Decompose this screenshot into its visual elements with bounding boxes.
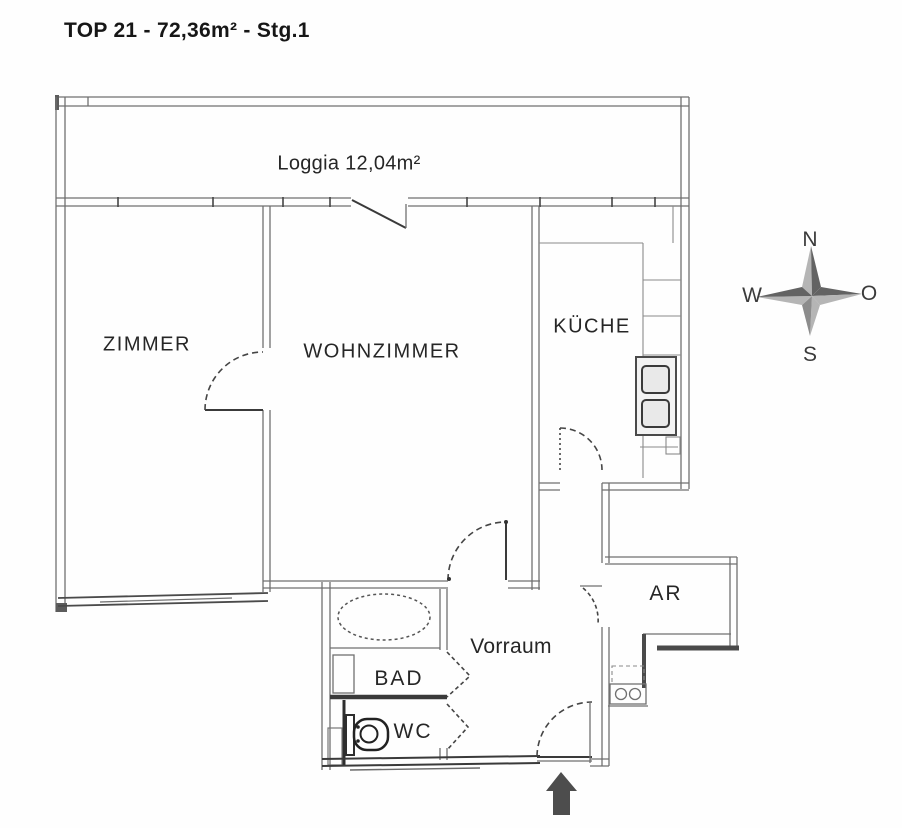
room-label-wc: WC bbox=[394, 720, 433, 744]
compass-south-label: S bbox=[803, 343, 817, 367]
compass-north-label: N bbox=[802, 228, 817, 252]
zimmer-door bbox=[205, 352, 263, 410]
wohnzimmer-door bbox=[447, 520, 508, 581]
bad-door bbox=[447, 652, 470, 697]
room-label-bad: BAD bbox=[374, 667, 423, 691]
kueche-door bbox=[560, 428, 602, 470]
room-label-vorraum: Vorraum bbox=[470, 635, 551, 659]
toilet bbox=[328, 700, 388, 766]
kueche-walls-fixtures bbox=[539, 206, 689, 490]
floorplan-drawing bbox=[0, 0, 902, 828]
ar-door bbox=[580, 586, 602, 624]
room-label-ar: AR bbox=[649, 582, 682, 606]
wc-door bbox=[447, 704, 468, 750]
room-label-wohnzimmer: WOHNZIMMER bbox=[303, 341, 460, 364]
loggia-door bbox=[352, 200, 406, 228]
room-label-zimmer: ZIMMER bbox=[103, 334, 191, 357]
room-label-loggia: Loggia 12,04m² bbox=[277, 153, 420, 176]
compass-east-label: O bbox=[861, 282, 877, 306]
floorplan-page: TOP 21 - 72,36m² - Stg.1 bbox=[0, 0, 902, 828]
bathtub bbox=[338, 594, 430, 640]
entrance-arrow-icon bbox=[546, 772, 577, 815]
room-label-kueche: KÜCHE bbox=[553, 316, 631, 339]
entrance-walls bbox=[322, 702, 609, 770]
compass-rose-icon bbox=[757, 246, 862, 336]
compass-west-label: W bbox=[742, 284, 762, 308]
loggia-window-wall bbox=[56, 197, 689, 228]
zimmer-walls bbox=[58, 206, 270, 606]
stove-unit bbox=[636, 357, 676, 435]
wohnzimmer-walls bbox=[263, 206, 540, 590]
entrance-door bbox=[537, 702, 592, 763]
bad-washbasin bbox=[333, 655, 354, 693]
corridor-ar-walls bbox=[580, 483, 739, 766]
